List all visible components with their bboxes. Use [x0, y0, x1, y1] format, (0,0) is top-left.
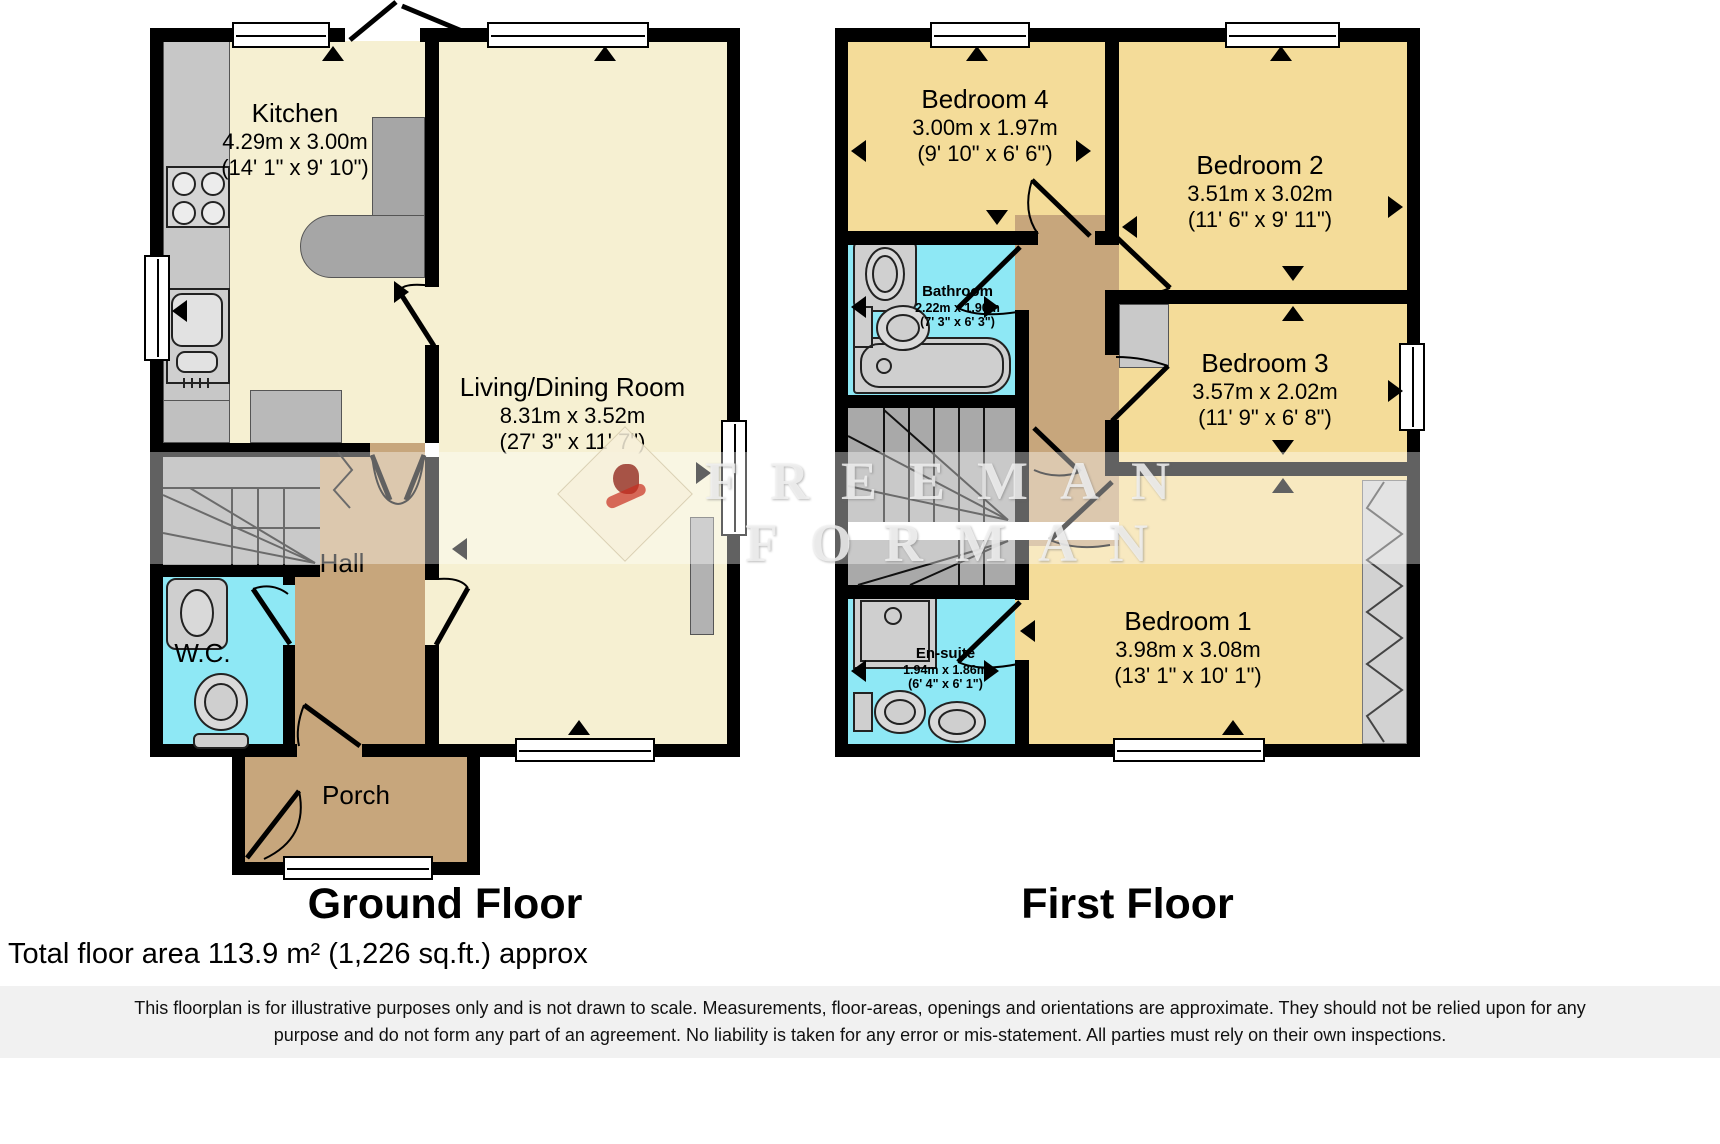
- window: [283, 856, 433, 880]
- room-name: Bedroom 2: [1130, 150, 1390, 181]
- opening-marker-icon: [1020, 620, 1035, 642]
- disclaimer-line1: This floorplan is for illustrative purpo…: [0, 995, 1720, 1022]
- room-dims-imperial: (11' 6" x 9' 11"): [1130, 207, 1390, 233]
- window: [930, 22, 1030, 48]
- wall: [150, 744, 297, 757]
- window: [515, 738, 655, 762]
- wall: [283, 645, 295, 744]
- wall: [1105, 290, 1119, 355]
- room-label-kitchen: Kitchen 4.29m x 3.00m (14' 1" x 9' 10"): [170, 98, 420, 181]
- wall: [835, 585, 1015, 599]
- window: [1225, 22, 1340, 48]
- room-label-bedroom4: Bedroom 4 3.00m x 1.97m (9' 10" x 6' 6"): [860, 84, 1110, 167]
- door-opening: [1038, 231, 1095, 245]
- door-opening: [1105, 355, 1119, 420]
- room-label-bathroom: Bathroom 2.22m x 1.90m (7' 3" x 6' 3"): [880, 283, 1035, 330]
- opening-marker-icon: [594, 46, 616, 61]
- opening-marker-icon: [1388, 196, 1403, 218]
- opening-marker-icon: [172, 300, 187, 322]
- room-dims-metric: 1.94m x 1.86m: [868, 663, 1023, 678]
- window: [232, 22, 330, 48]
- room-name: En-suite: [868, 645, 1023, 663]
- room-dims-imperial: (9' 10" x 6' 6"): [860, 141, 1110, 167]
- first-floor-title: First Floor: [835, 880, 1420, 929]
- opening-marker-icon: [568, 720, 590, 735]
- opening-marker-icon: [851, 660, 866, 682]
- room-label-porch: Porch: [281, 780, 431, 811]
- opening-marker-icon: [322, 46, 344, 61]
- room-dims-metric: 3.00m x 1.97m: [860, 115, 1110, 141]
- door-opening: [297, 744, 362, 758]
- disclaimer: This floorplan is for illustrative purpo…: [0, 986, 1720, 1058]
- opening-marker-icon: [394, 281, 409, 303]
- room-dims-metric: 2.22m x 1.90m: [880, 301, 1035, 316]
- brand-logo-icon: [555, 424, 695, 564]
- door-opening: [283, 585, 295, 645]
- room-dims-metric: 3.98m x 3.08m: [1048, 637, 1328, 663]
- room-dims-imperial: (11' 9" x 6' 8"): [1135, 405, 1395, 431]
- room-dims-imperial: (7' 3" x 6' 3"): [880, 315, 1035, 330]
- room-dims-imperial: (6' 4" x 6' 1"): [868, 677, 1023, 692]
- wall: [232, 744, 245, 875]
- room-name: Porch: [281, 780, 431, 811]
- room-label-bedroom2: Bedroom 2 3.51m x 3.02m (11' 6" x 9' 11"…: [1130, 150, 1390, 233]
- opening-marker-icon: [1222, 720, 1244, 735]
- opening-marker-icon: [1282, 306, 1304, 321]
- disclaimer-line2: purpose and do not form any part of an a…: [0, 1022, 1720, 1049]
- wall: [425, 645, 439, 744]
- wall: [835, 395, 1015, 408]
- opening-marker-icon: [851, 296, 866, 318]
- window: [487, 22, 649, 48]
- door-opening: [425, 580, 439, 645]
- opening-marker-icon: [1282, 266, 1304, 281]
- window: [1113, 738, 1265, 762]
- wall: [848, 231, 1038, 245]
- bath-tub: [853, 337, 1011, 394]
- room-name: Bedroom 3: [1135, 348, 1395, 379]
- door-opening: [425, 287, 439, 345]
- window: [144, 255, 170, 361]
- room-dims-metric: 4.29m x 3.00m: [170, 129, 420, 155]
- kitchen-unit: [163, 400, 230, 443]
- room-dims-imperial: (14' 1" x 9' 10"): [170, 155, 420, 181]
- room-label-bedroom3: Bedroom 3 3.57m x 2.02m (11' 9" x 6' 8"): [1135, 348, 1395, 431]
- kitchen-peninsula-round: [300, 215, 425, 278]
- wall: [1015, 231, 1029, 245]
- watermark-text-line2: FORMAN: [745, 512, 1180, 574]
- room-name: Living/Dining Room: [420, 372, 725, 403]
- room-label-bedroom1: Bedroom 1 3.98m x 3.08m (13' 1" x 10' 1"…: [1048, 606, 1328, 689]
- room-dims-metric: 3.57m x 2.02m: [1135, 379, 1395, 405]
- room-dims-metric: 3.51m x 3.02m: [1130, 181, 1390, 207]
- wall: [1095, 231, 1119, 245]
- kitchen-unit-bottom: [250, 390, 342, 443]
- opening-marker-icon: [966, 46, 988, 61]
- ground-floor-title: Ground Floor: [150, 880, 740, 929]
- wall: [727, 28, 740, 757]
- wall: [1119, 290, 1407, 304]
- room-label-ensuite: En-suite 1.94m x 1.86m (6' 4" x 6' 1"): [868, 645, 1023, 692]
- room-name: Kitchen: [170, 98, 420, 129]
- ensuite-toilet-cistern: [853, 692, 873, 732]
- opening-marker-icon: [986, 210, 1008, 225]
- floorplan-canvas: Kitchen 4.29m x 3.00m (14' 1" x 9' 10") …: [0, 0, 1720, 1144]
- room-name: Bedroom 4: [860, 84, 1110, 115]
- room-name: Bathroom: [880, 283, 1035, 301]
- watermark-text-line1: FREEMAN: [705, 450, 1202, 512]
- room-name: W.C.: [150, 638, 255, 669]
- room-name: Bedroom 1: [1048, 606, 1328, 637]
- room-dims-imperial: (13' 1" x 10' 1"): [1048, 663, 1328, 689]
- room-label-wc: W.C.: [150, 638, 255, 669]
- wall: [835, 28, 848, 757]
- wall: [467, 744, 480, 875]
- total-floor-area: Total floor area 113.9 m² (1,226 sq.ft.)…: [8, 938, 588, 971]
- opening-marker-icon: [1270, 46, 1292, 61]
- wall: [425, 41, 439, 287]
- wall: [1015, 585, 1029, 600]
